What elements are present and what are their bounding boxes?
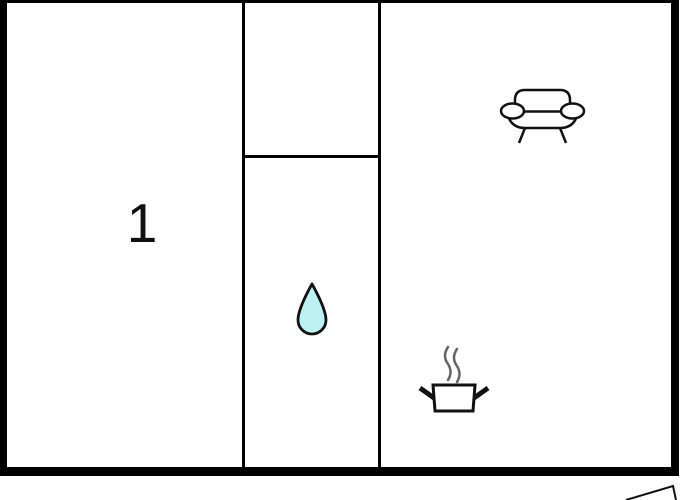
- north-arrow-icon: [624, 480, 679, 500]
- room-number-label: 1: [110, 190, 174, 256]
- room-top-center: [245, 3, 378, 155]
- steam-icon: [445, 347, 460, 382]
- wall-outer-top: [0, 0, 679, 3]
- floorplan-canvas: 1: [0, 0, 700, 500]
- sofa-icon: [497, 83, 587, 145]
- wall-outer-bottom: [0, 467, 679, 476]
- wall-outer-right: [671, 0, 679, 476]
- wall-inner-vertical-left: [242, 0, 245, 470]
- wall-inner-horizontal: [242, 155, 381, 158]
- water-drop-icon: [294, 281, 330, 339]
- wall-inner-vertical-right: [378, 0, 381, 470]
- wall-outer-left: [0, 0, 7, 476]
- cooking-pot-icon: [415, 343, 493, 417]
